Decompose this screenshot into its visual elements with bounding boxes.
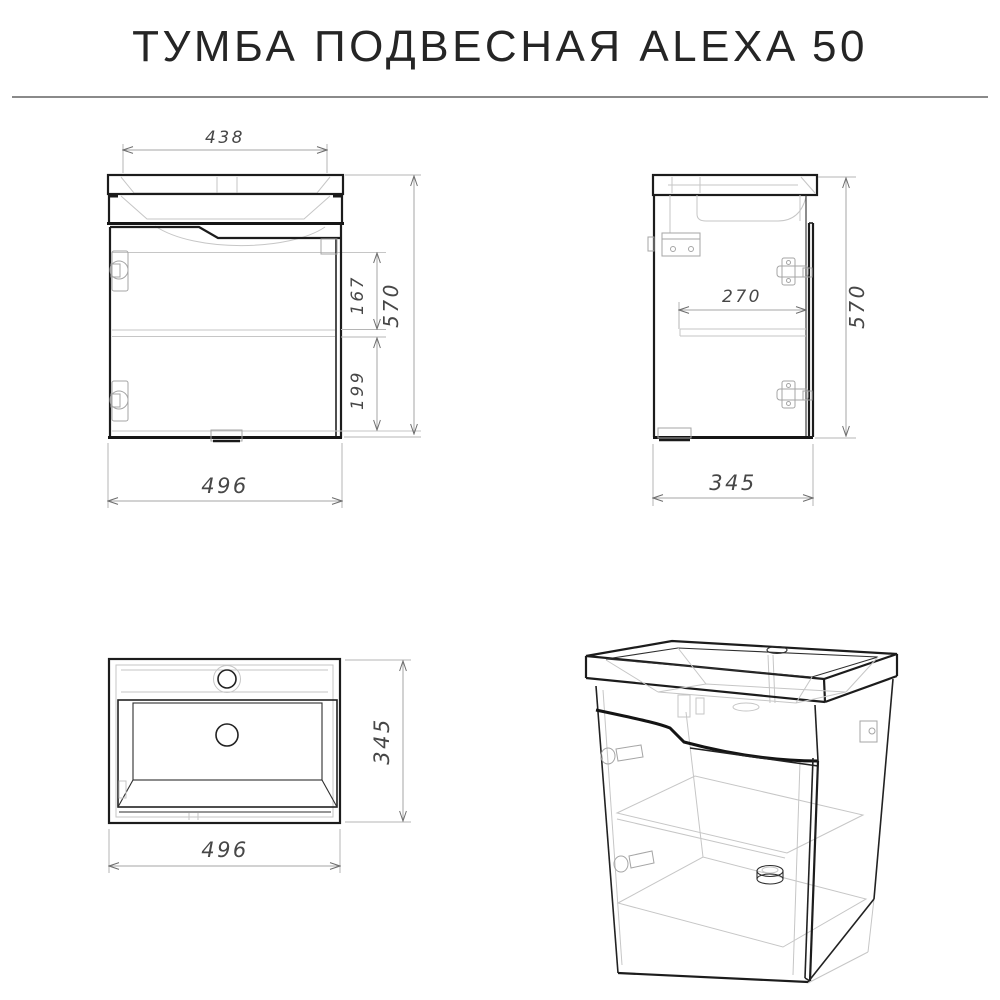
front-hinge-bottom [110,381,128,421]
front-dim-width-bottom: 496 [201,474,249,498]
side-hinge-bottom [777,381,812,408]
sink-outer-edge [109,659,340,823]
perspective-side-bracket [860,721,877,742]
cabinet-floor [618,857,866,947]
front-cabinet-body [108,223,421,441]
basin-outline [118,700,337,820]
side-dim-depth: 345 [709,471,757,495]
side-dim-height: 570 [845,283,869,329]
top-dim-width: 496 [201,838,249,862]
wall-mount-bracket [648,233,700,256]
front-hinge-top [110,251,128,291]
front-dim-width-top: 438 [205,128,245,148]
drawing-sheet: ТУМБА ПОДВЕСНАЯ ALEXA 50 [0,0,1000,1000]
technical-drawing: 438 570 167 199 496 [0,0,1000,1000]
front-view: 438 570 167 199 496 [107,128,421,508]
side-view: 270 570 345 [648,175,869,506]
hidden-bowl-curve [155,226,325,246]
hidden-bowl-profile [697,195,806,221]
front-dim-inner-upper: 167 [348,275,368,315]
faucet-hole [214,666,241,693]
side-foot [658,428,691,440]
top-view: 345 496 [109,659,411,873]
perspective-hinge-bottom [614,851,654,872]
side-dimensions: 270 570 345 [653,177,869,506]
side-dim-shelf-depth: 270 [722,287,762,307]
front-dim-inner-lower: 199 [348,370,368,410]
drain-hole [216,724,238,746]
perspective-view [586,641,897,983]
bottom-tab [211,430,242,441]
handle-recess-3d [596,710,818,761]
side-hinge-top [777,258,812,285]
front-dimensions: 438 570 167 199 496 [108,128,421,508]
perspective-sink-top [586,641,897,703]
perspective-hidden-lines [603,655,874,983]
door-bracket [321,239,337,254]
front-dim-height: 570 [379,282,403,328]
front-sink-rim [107,175,344,224]
top-dim-depth: 345 [370,717,394,765]
shelf [617,776,863,853]
side-sink-top [653,175,817,195]
